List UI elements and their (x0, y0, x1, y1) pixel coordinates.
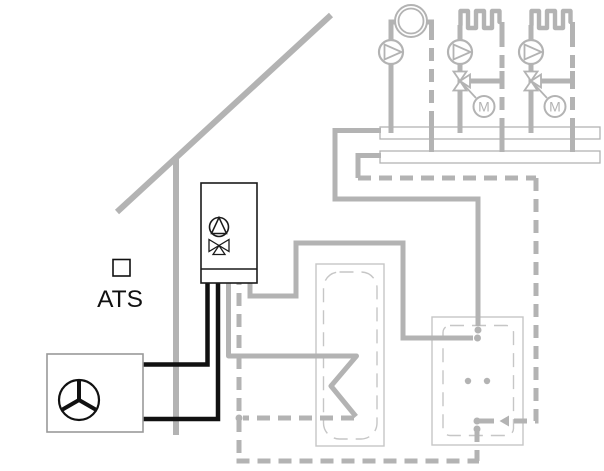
circuit2-radiator (461, 11, 500, 28)
circuit3-radiator (532, 11, 571, 28)
buffer-top-port-dot-2 (474, 335, 481, 342)
indoor-unit (201, 183, 257, 283)
indoor-unit-body (201, 183, 257, 283)
return-manifold (380, 151, 600, 163)
outdoor-sensor-icon (113, 260, 130, 277)
buffer-sensor-dot-1 (465, 378, 471, 384)
flow-manifold (380, 127, 600, 139)
outdoor-temperature-sensor: ATS (97, 260, 143, 314)
circuit3-motor-label: M (549, 99, 561, 115)
manifolds (380, 127, 600, 163)
circuit3-mixer-bypass (541, 71, 573, 81)
junction-dot-coil-return (236, 415, 243, 422)
pipe-manifold-return-stub (358, 156, 381, 179)
heat-pump-outdoor-unit (47, 354, 143, 432)
buffer-bottom-port-dot-2 (474, 426, 481, 433)
hydraulic-scheme-diagram: M M ATS (0, 0, 604, 471)
buffer-sensor-dot-2 (484, 378, 490, 384)
outdoor-sensor-label: ATS (97, 286, 143, 313)
circuit1-inner-circle-icon (399, 9, 424, 34)
circuit2-motor-label: M (478, 99, 490, 115)
pipe-hp-flow (137, 272, 208, 365)
buffer-top-port-dot-1 (475, 327, 482, 334)
buffer-bottom-port-dot-1 (474, 418, 481, 425)
circuit2-mixer-bypass (470, 71, 502, 81)
circuit1-flow-pipe (391, 22, 398, 133)
